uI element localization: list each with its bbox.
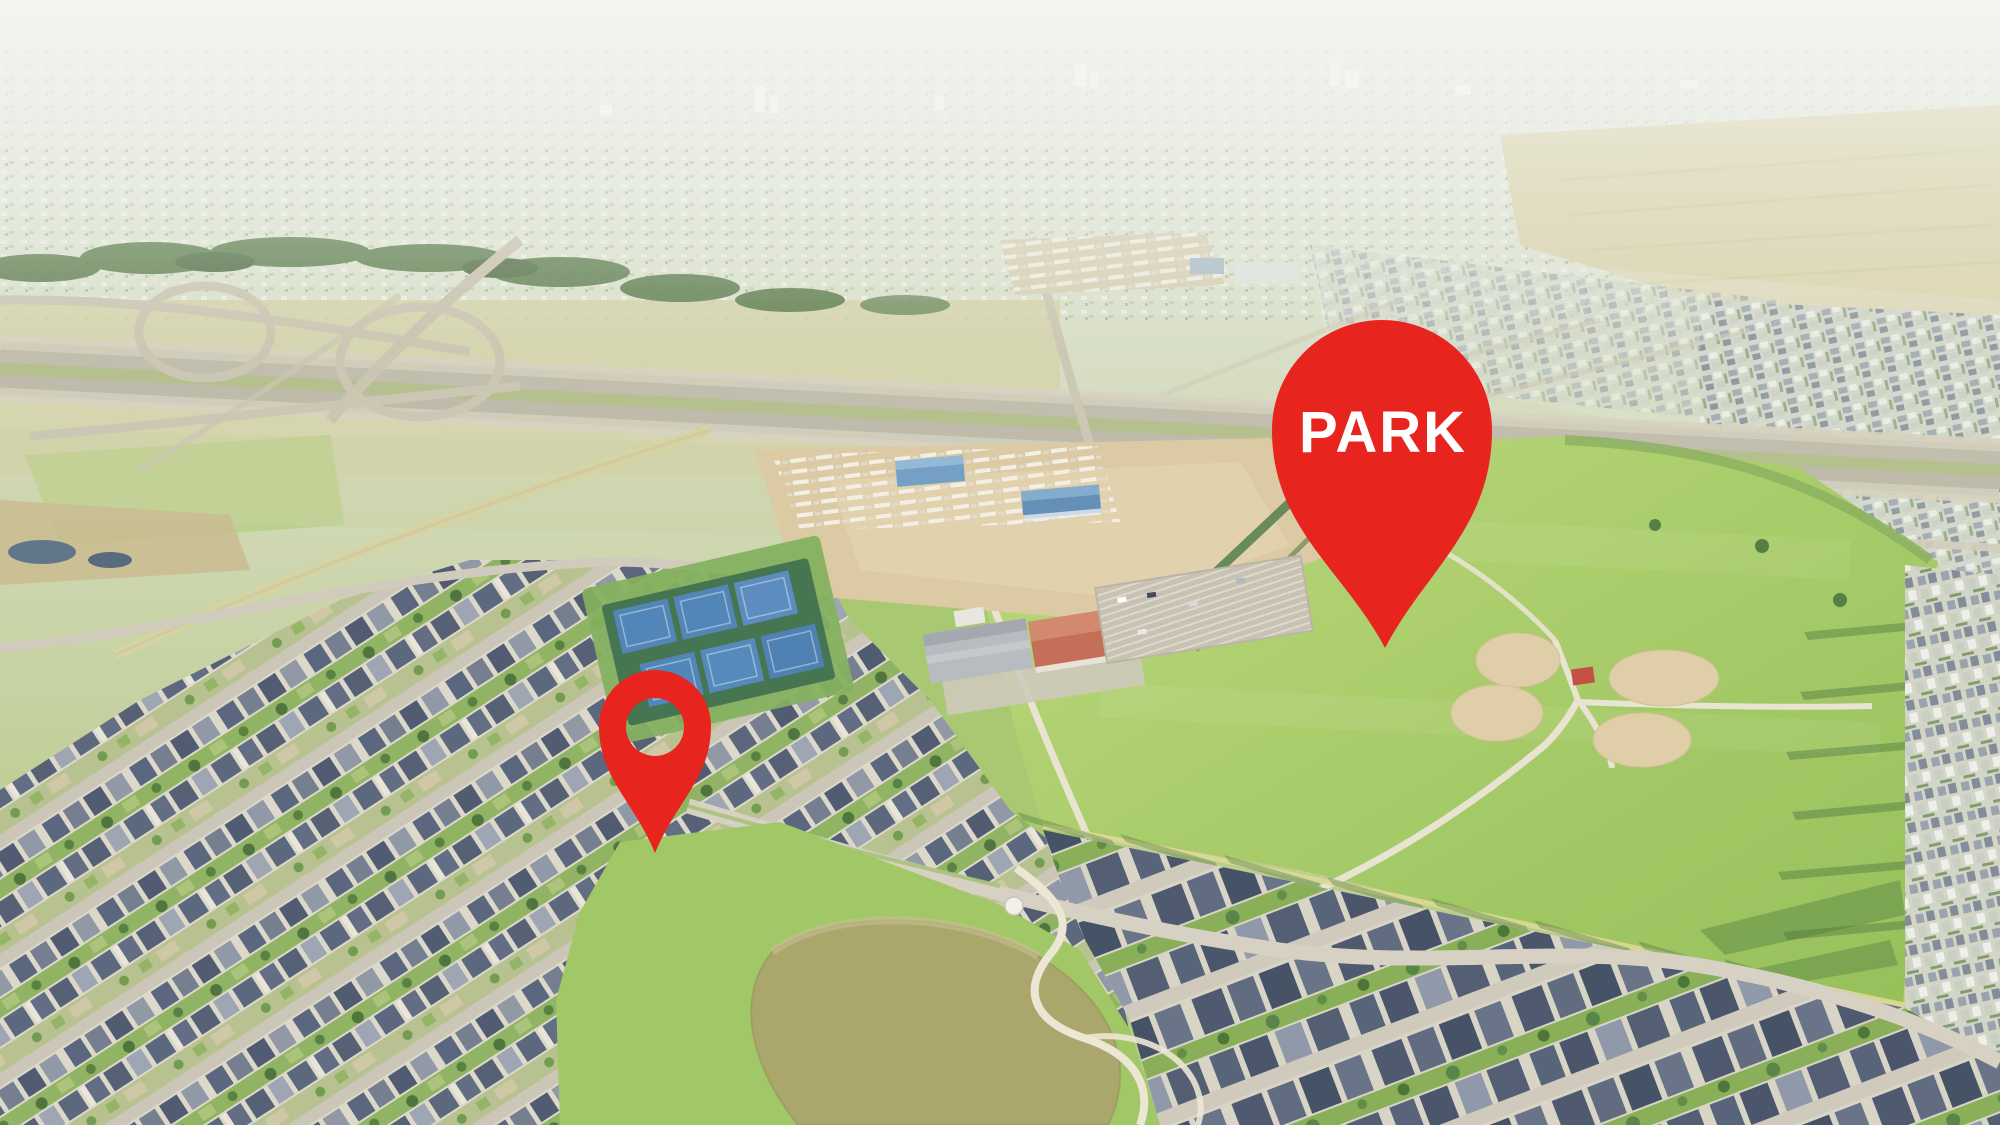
aerial-photo: PARK xyxy=(0,0,2000,1125)
warm-wash xyxy=(0,0,2000,1125)
listing-photo: PARK xyxy=(0,0,2000,1125)
park-pin-label: PARK xyxy=(1299,400,1467,465)
